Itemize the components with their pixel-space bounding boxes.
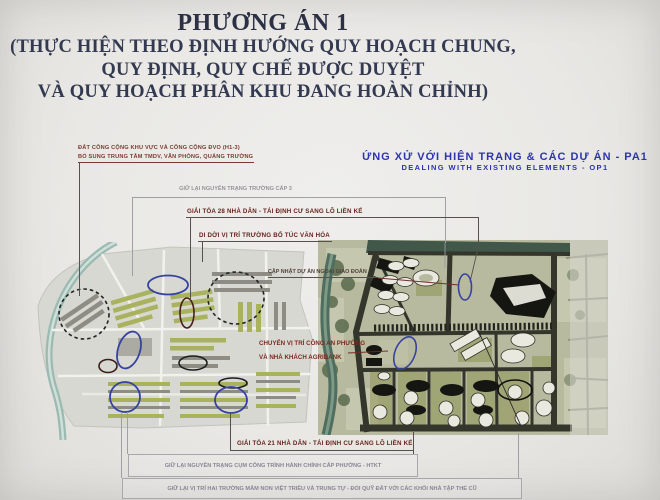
leader-line [198,241,332,242]
courtyard [419,274,433,282]
leader-line [121,412,122,478]
leader-line [518,433,519,478]
annotation-keep-kindergarten: GIỮ LẠI VỊ TRÍ HAI TRƯỜNG MẦM NON VIỆT T… [167,486,476,492]
leader-line [478,217,479,248]
annotation-public-land-line1: ĐẤT CÔNG CỘNG KHU VỰC VÀ CÔNG CỘNG ĐVO (… [78,144,253,153]
leader-line [190,217,191,300]
leader-line [132,197,133,276]
annotation-clear-21-houses: GIẢI TỎA 21 NHÀ DÂN - TÁI ĐỊNH CƯ SANG L… [237,440,413,447]
presentation-slide: PHƯƠNG ÁN 1 (THỰC HIỆN THEO ĐỊNH HƯỚNG Q… [0,0,660,500]
leader-line [413,432,414,455]
annotation-move-school: DI DỜI VỊ TRÍ TRƯỜNG BỔ TÚC VĂN HÓA [199,232,330,239]
section-heading-vietnamese: ỨNG XỬ VỚI HIỆN TRẠNG & CÁC DỰ ÁN - PA1 [348,151,660,163]
section-heading: ỨNG XỬ VỚI HIỆN TRẠNG & CÁC DỰ ÁN - PA1 … [348,151,660,173]
leader-line [186,217,478,218]
annotation-public-land-line2: BỔ SUNG TRUNG TÂM TMDV, VĂN PHÒNG, QUẢNG… [78,153,253,162]
parking-strip [374,326,552,328]
title-subtitle-line-3: VÀ QUY HOẠCH PHÂN KHU ĐANG HOÀN CHỈNH) [8,81,518,104]
annotation-keep-admin-box: GIỮ LẠI NGUYÊN TRẠNG CỤM CÔNG TRÌNH HÀNH… [128,454,418,477]
section-heading-english: DEALING WITH EXISTING ELEMENTS - OP1 [348,163,660,173]
annotation-keep-admin: GIỮ LẠI NGUYÊN TRẠNG CỤM CÔNG TRÌNH HÀNH… [165,463,382,469]
annotation-move-police-line2: VÀ NHÀ KHÁCH AGRIBANK [259,351,365,365]
annotation-keep-kindergarten-box: GIỮ LẠI VỊ TRÍ HAI TRƯỜNG MẦM NON VIỆT T… [122,478,522,499]
annotation-clear-28-houses: GIẢI TỎA 28 NHÀ DÂN - TÁI ĐỊNH CƯ SANG L… [187,208,363,215]
leader-line [230,413,231,450]
leader-line [202,241,203,262]
leader-line [127,412,128,454]
annotation-move-police-line1: CHUYỂN VỊ TRÍ CÔNG AN PHƯỜNG [259,337,365,351]
title-block: PHƯƠNG ÁN 1 (THỰC HIỆN THEO ĐỊNH HƯỚNG Q… [8,10,518,104]
annotation-public-land: ĐẤT CÔNG CỘNG KHU VỰC VÀ CÔNG CỘNG ĐVO (… [78,144,253,161]
page-title: PHƯƠNG ÁN 1 [8,10,518,36]
leader-line [132,197,445,198]
leader-line [268,277,378,278]
map-edge-fade [570,240,608,435]
title-subtitle-line-2: QUY ĐỊNH, QUY CHẾ ĐƯỢC DUYỆT [8,59,518,82]
title-subtitle-line-1: (THỰC HIỆN THEO ĐỊNH HƯỚNG QUY HOẠCH CHU… [8,36,518,59]
leader-line [79,163,80,296]
annotation-update-project: CẬP NHẬT DỰ ÁN NGOẠI GIAO ĐOÀN [268,269,367,275]
leader-line [445,197,446,243]
leader-line [78,162,254,163]
annotation-keep-school: GIỮ LẠI NGUYÊN TRẠNG TRƯỜNG CẤP 3 [158,186,313,192]
annotation-move-police: CHUYỂN VỊ TRÍ CÔNG AN PHƯỜNG VÀ NHÀ KHÁC… [259,337,365,365]
leader-line [230,450,413,451]
